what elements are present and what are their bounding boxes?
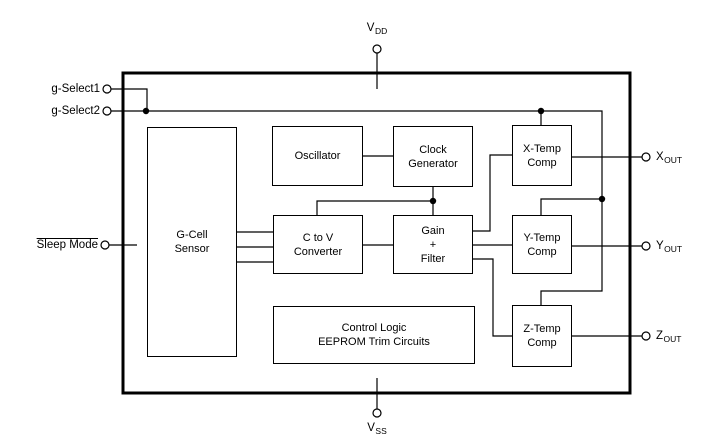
y-temp-comp-label-line: Comp [527,245,556,259]
yout-label-subscript: OUT [664,244,682,254]
y-temp-comp-label-line: Y-Temp [524,231,561,245]
z-temp-comp-block: Z-TempComp [512,305,572,367]
vss-pin-label: VSS [327,420,427,436]
x-temp-comp-label-line: Comp [527,156,556,170]
sleep-mode-pin-circle [101,241,109,249]
g-select1-label-text: g-Select1 [51,83,100,95]
clock-generator-label-line: Clock [419,143,447,157]
control-logic-label-line: Control Logic [342,321,407,335]
control-logic-label-line: EEPROM Trim Circuits [318,335,430,349]
xout-pin-label: XOUT [656,149,682,165]
clock-generator-label-line: Generator [408,157,458,171]
g-select1-pin-label: g-Select1 [51,81,100,97]
xout-label-subscript: OUT [664,155,682,165]
yout-pin-label: YOUT [656,238,682,254]
y-temp-comp-block: Y-TempComp [512,215,572,274]
x-temp-comp-block: X-TempComp [512,125,572,186]
g-cell-sensor-label-line: G-Cell [176,228,207,242]
vdd-label-subscript: DD [375,26,387,36]
junction-dot [538,108,544,114]
oscillator-label-line: Oscillator [295,149,341,163]
g-cell-sensor-block: G-CellSensor [147,127,237,357]
y-temp-top-branch [541,199,602,215]
xout-pin-circle [642,153,650,161]
vss-pin-circle [373,409,381,417]
vss-label-text: V [367,422,375,434]
junction-dot [430,198,436,204]
sleep-mode-pin-label: Sleep Mode [37,237,98,253]
zout-label-text: Z [656,330,663,342]
g-select1-pin-circle [103,85,111,93]
z-temp-comp-label-line: Comp [527,336,556,350]
yout-pin-circle [642,242,650,250]
clock-to-ctov [317,201,433,215]
g-select2-label-text: g-Select2 [51,105,100,117]
c-to-v-converter-label-line: C to V [303,231,334,245]
gain-filter-label-line: + [430,238,436,252]
z-temp-comp-label-line: Z-Temp [523,322,560,336]
junction-dot [599,196,605,202]
g-select2-pin-label: g-Select2 [51,103,100,119]
control-logic-block: Control LogicEEPROM Trim Circuits [273,306,475,364]
clock-generator-block: ClockGenerator [393,126,473,187]
c-to-v-converter-label-line: Converter [294,245,342,259]
gain-filter-block: Gain+Filter [393,215,473,274]
vdd-pin-circle [373,45,381,53]
gain-filter-label-line: Gain [421,224,444,238]
yout-label-text: Y [656,240,664,252]
gain-to-xtemp [473,155,512,231]
g-select2-pin-circle [103,107,111,115]
gain-to-ztemp [473,259,512,336]
junction-dot [143,108,149,114]
zout-pin-circle [642,332,650,340]
vdd-pin-label: VDD [327,20,427,36]
g-select1-wire [111,89,147,111]
zout-label-subscript: OUT [664,334,682,344]
gain-filter-label-line: Filter [421,252,445,266]
xout-label-text: X [656,151,664,163]
block-diagram-canvas: G-CellSensorOscillatorClockGeneratorC to… [0,0,711,445]
zout-pin-label: ZOUT [656,328,681,344]
c-to-v-converter-block: C to VConverter [273,215,363,274]
vdd-label-text: V [367,22,375,34]
x-temp-comp-label-line: X-Temp [523,142,561,156]
g-cell-sensor-label-line: Sensor [175,242,210,256]
oscillator-block: Oscillator [272,126,363,186]
vss-label-subscript: SS [375,426,386,436]
sleep-mode-label-text: Sleep Mode [37,239,98,251]
